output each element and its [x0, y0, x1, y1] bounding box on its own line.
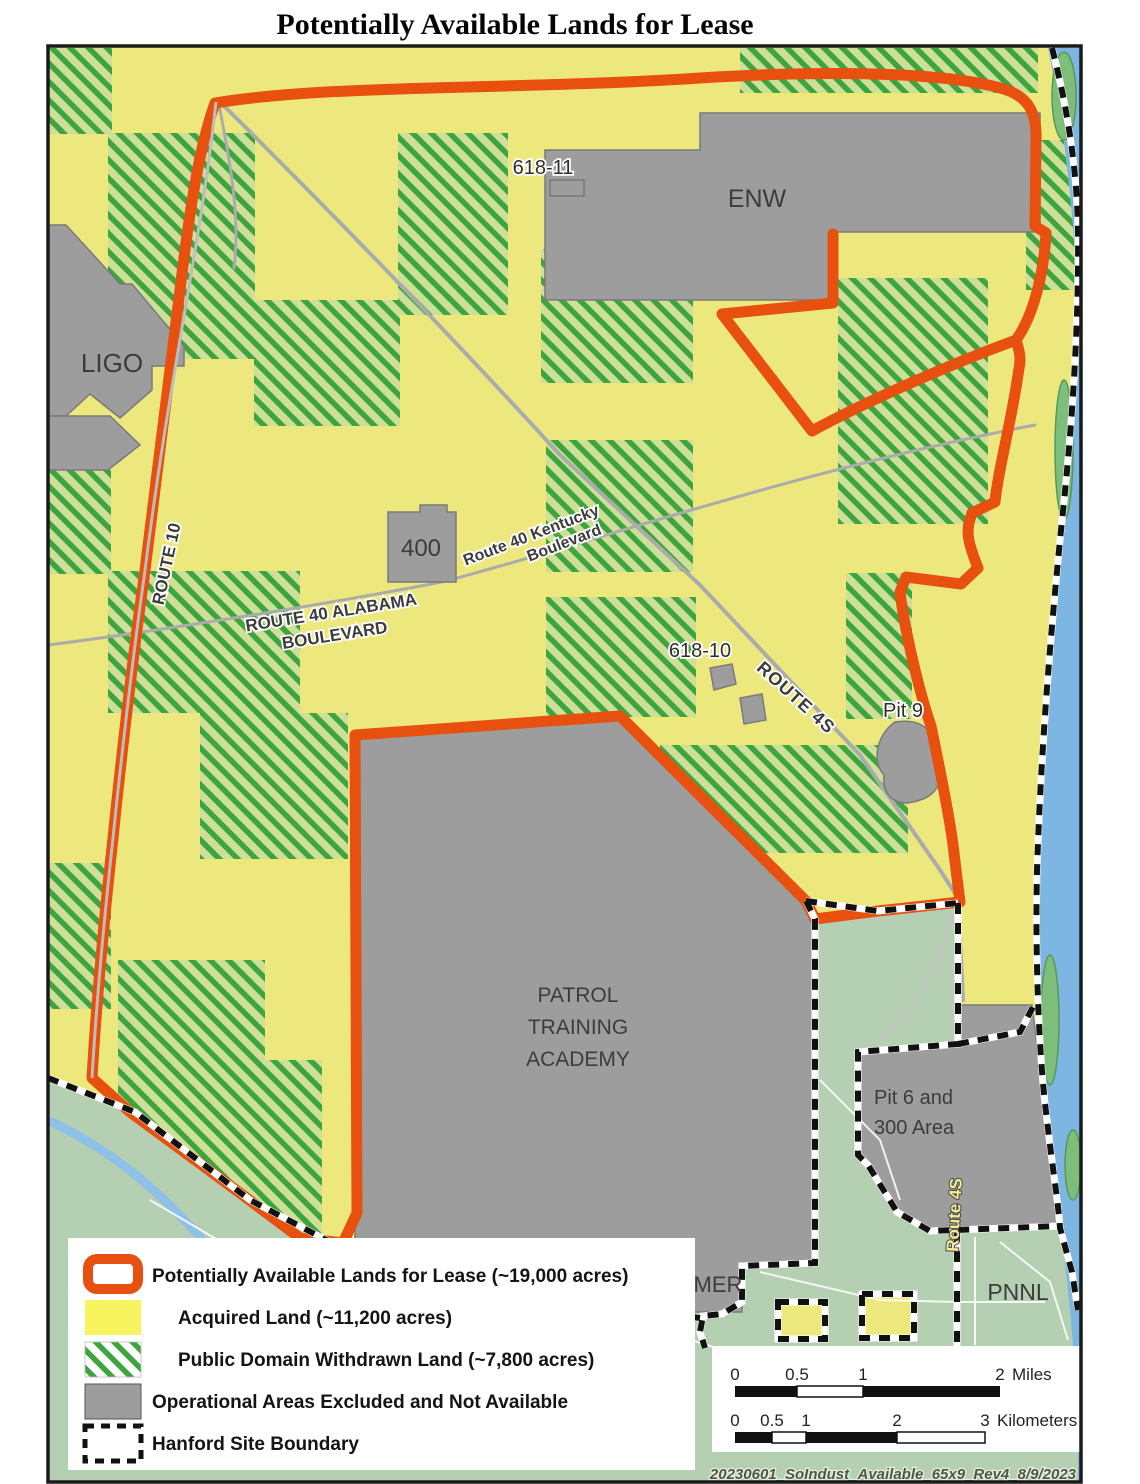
label-pit-6-line1: Pit 6 and [874, 1087, 953, 1109]
km-tick-2: 2 [892, 1411, 901, 1430]
label-route-4s-south: Route 4S [943, 1178, 966, 1253]
miles-tick-0: 0 [730, 1365, 739, 1384]
label-patrol-line1: PATROL [538, 984, 619, 1007]
scale-bar: 0 0.5 1 2 Miles 0 0.5 1 2 3 Kilometers [712, 1346, 1081, 1452]
legend-swatch-lease-outline [88, 1259, 138, 1289]
label-618-10: 618-10 [669, 640, 731, 662]
label-enw: ENW [728, 185, 787, 213]
legend-item-acquired: Acquired Land (~11,200 acres) [178, 1308, 452, 1329]
label-pnnl: PNNL [987, 1279, 1049, 1305]
map-document-page: Potentially Available Lands for Lease [0, 0, 1140, 1484]
legend-item-withdrawn: Public Domain Withdrawn Land (~7,800 acr… [178, 1350, 594, 1371]
legend-item-lease: Potentially Available Lands for Lease (~… [152, 1266, 628, 1287]
legend-swatch-site-boundary [85, 1426, 141, 1461]
km-tick-0: 0 [730, 1411, 739, 1430]
legend-swatch-operational [85, 1384, 141, 1419]
area-618-11-building [550, 180, 584, 196]
page-title: Potentially Available Lands for Lease [276, 8, 753, 41]
label-pit-6-line2: 300 Area [874, 1117, 955, 1139]
km-tick-05: 0.5 [760, 1411, 784, 1430]
label-hammer-partial: MER [694, 1272, 743, 1297]
km-tick-3: 3 [980, 1411, 989, 1430]
legend: Potentially Available Lands for Lease (~… [68, 1238, 695, 1470]
miles-unit-label: Miles [1012, 1365, 1052, 1384]
km-unit-label: Kilometers [997, 1411, 1077, 1430]
label-pit-9: Pit 9 [883, 700, 923, 722]
miles-tick-05: 0.5 [785, 1365, 809, 1384]
legend-item-site-boundary: Hanford Site Boundary [152, 1434, 359, 1455]
km-tick-1: 1 [801, 1411, 810, 1430]
label-400: 400 [401, 535, 441, 562]
label-618-11: 618-11 [513, 157, 574, 179]
label-patrol-line3: ACADEMY [526, 1048, 630, 1071]
legend-item-operational: Operational Areas Excluded and Not Avail… [152, 1392, 568, 1413]
miles-tick-1: 1 [858, 1365, 867, 1384]
label-patrol-line2: TRAINING [528, 1016, 628, 1039]
map-figure: Potentially Available Lands for Lease [0, 0, 1140, 1484]
label-ligo: LIGO [81, 348, 143, 378]
legend-swatch-acquired [85, 1300, 141, 1335]
legend-swatch-withdrawn [85, 1342, 141, 1377]
area-618-10-b [740, 694, 766, 724]
map-canvas: 618-11 ENW LIGO 400 ROUTE 10 Route 40 Ke… [48, 46, 1087, 1484]
miles-tick-2: 2 [995, 1365, 1004, 1384]
